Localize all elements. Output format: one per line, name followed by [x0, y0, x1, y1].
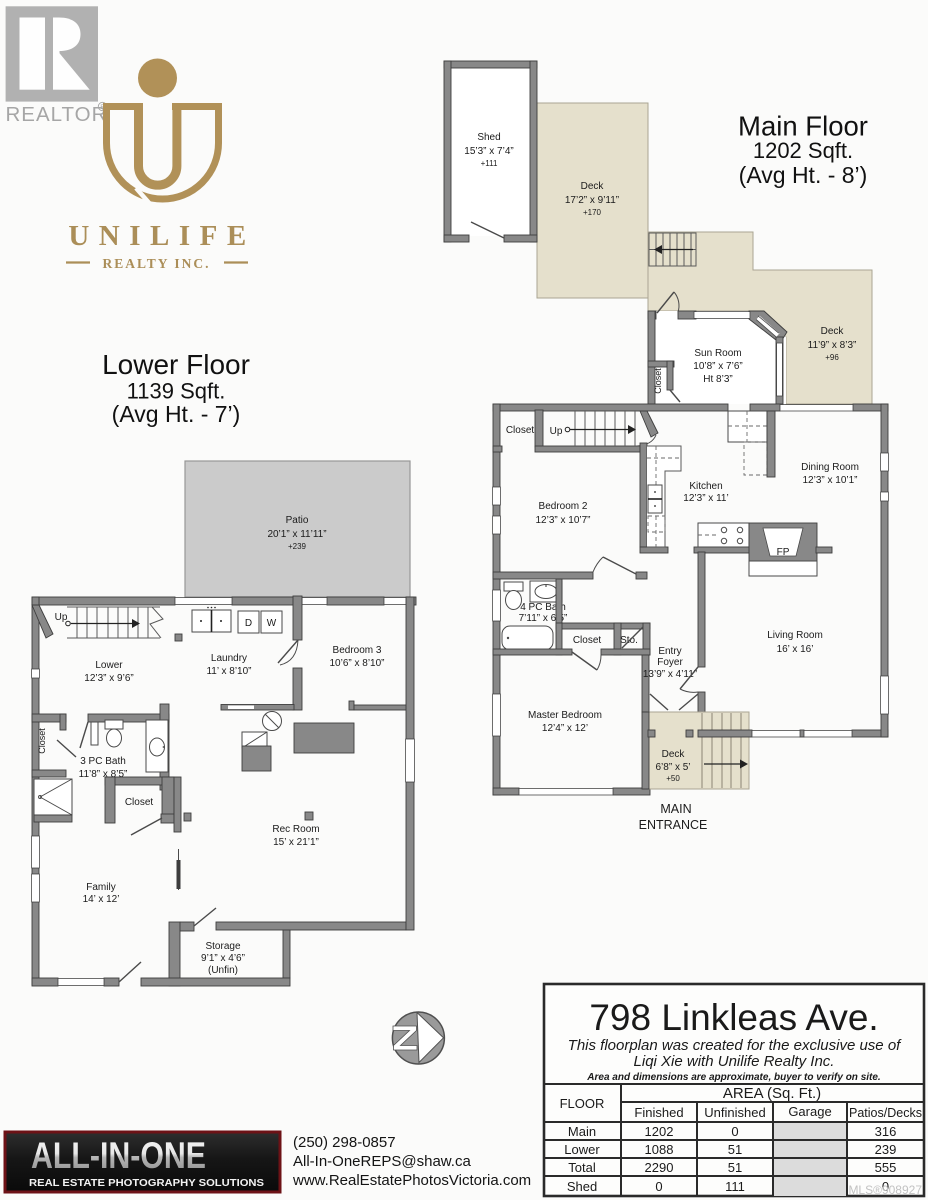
svg-text:12’4” x 12’: 12’4” x 12’ — [542, 723, 588, 734]
svg-text:0: 0 — [731, 1124, 738, 1139]
svg-text:MLS®908927: MLS®908927 — [848, 1183, 922, 1197]
svg-text:FLOOR: FLOOR — [560, 1096, 605, 1111]
svg-text:Patio: Patio — [286, 515, 309, 526]
svg-text:ALL-IN-ONE: ALL-IN-ONE — [31, 1135, 206, 1176]
svg-text:51: 51 — [728, 1142, 742, 1157]
svg-text:12’3” x 11’: 12’3” x 11’ — [683, 493, 728, 504]
svg-text:798 Linkleas Ave.: 798 Linkleas Ave. — [589, 997, 878, 1038]
svg-text:Up: Up — [550, 426, 563, 437]
svg-text:Storage: Storage — [205, 941, 240, 952]
svg-text:Unfinished: Unfinished — [704, 1105, 765, 1120]
svg-text:+96: +96 — [825, 353, 839, 362]
svg-text:Up: Up — [55, 612, 68, 623]
svg-text:ENTRANCE: ENTRANCE — [639, 818, 708, 832]
svg-text:Closet: Closet — [653, 368, 663, 394]
svg-text:Sun Room: Sun Room — [694, 348, 741, 359]
svg-text:All-In-OneREPS@shaw.ca: All-In-OneREPS@shaw.ca — [293, 1153, 471, 1170]
svg-text:10’8” x 7’6”: 10’8” x 7’6” — [693, 361, 742, 372]
svg-text:Patios/Decks: Patios/Decks — [849, 1106, 922, 1120]
svg-text:11’ x 8’10”: 11’ x 8’10” — [206, 666, 251, 677]
svg-text:51: 51 — [728, 1160, 742, 1175]
svg-text:+239: +239 — [288, 542, 307, 551]
svg-text:(Avg Ht. - 7’): (Avg Ht. - 7’) — [112, 401, 241, 427]
svg-text:Shed: Shed — [567, 1179, 597, 1194]
svg-text:Liqi Xie with Unilife Realty I: Liqi Xie with Unilife Realty Inc. — [634, 1053, 835, 1070]
svg-text:111: 111 — [725, 1179, 745, 1194]
svg-text:Bedroom 2: Bedroom 2 — [539, 501, 588, 512]
svg-text:2290: 2290 — [645, 1160, 674, 1175]
svg-text:Area and dimensions are approx: Area and dimensions are approximate, buy… — [586, 1072, 880, 1083]
svg-text:REAL ESTATE PHOTOGRAPHY SOLUTI: REAL ESTATE PHOTOGRAPHY SOLUTIONS — [29, 1178, 264, 1189]
svg-text:1202: 1202 — [645, 1124, 674, 1139]
svg-text:316: 316 — [875, 1124, 897, 1139]
svg-text:Laundry: Laundry — [211, 653, 247, 664]
svg-text:Finished: Finished — [634, 1105, 683, 1120]
svg-text:14’ x 12’: 14’ x 12’ — [83, 894, 120, 905]
svg-text:Ht 8’3”: Ht 8’3” — [703, 374, 732, 385]
svg-text:6’8” x 5’: 6’8” x 5’ — [655, 762, 690, 773]
svg-text:12’3” x 10’7”: 12’3” x 10’7” — [535, 515, 590, 526]
svg-text:(Unfin): (Unfin) — [208, 965, 238, 976]
svg-text:Closet: Closet — [125, 797, 154, 808]
svg-text:Dining Room: Dining Room — [801, 462, 859, 473]
svg-text:15’ x 21’1”: 15’ x 21’1” — [273, 837, 319, 848]
svg-text:REALTY INC.: REALTY INC. — [102, 256, 210, 271]
svg-text:Lower: Lower — [95, 660, 123, 671]
svg-text:(250) 298-0857: (250) 298-0857 — [293, 1134, 396, 1151]
svg-text:Main: Main — [568, 1124, 596, 1139]
svg-text:Total: Total — [568, 1160, 596, 1175]
svg-text:10’6” x 8’10”: 10’6” x 8’10” — [329, 658, 384, 669]
svg-text:12’3” x 10’1”: 12’3” x 10’1” — [802, 475, 857, 486]
svg-text:Foyer: Foyer — [657, 657, 683, 668]
svg-text:Rec Room: Rec Room — [272, 824, 319, 835]
svg-text:Family: Family — [86, 882, 115, 893]
svg-text:Lower Floor: Lower Floor — [102, 349, 250, 380]
svg-text:1202 Sqft.: 1202 Sqft. — [753, 138, 853, 163]
svg-text:15’3” x 7’4”: 15’3” x 7’4” — [464, 146, 513, 157]
svg-text:Shed: Shed — [477, 132, 500, 143]
svg-text:12’3” x 9’6”: 12’3” x 9’6” — [84, 673, 133, 684]
svg-text:AREA (Sq. Ft.): AREA (Sq. Ft.) — [723, 1085, 821, 1102]
svg-text:D: D — [245, 618, 252, 629]
svg-text:Closet: Closet — [506, 425, 535, 436]
svg-text:+111: +111 — [481, 159, 498, 168]
svg-text:Bedroom 3: Bedroom 3 — [333, 645, 382, 656]
svg-text:W: W — [267, 618, 277, 629]
svg-text:REALTOR: REALTOR — [6, 103, 108, 126]
svg-text:Living Room: Living Room — [767, 630, 823, 641]
svg-text:1139 Sqft.: 1139 Sqft. — [127, 379, 226, 404]
svg-text:(Avg Ht. - 8’): (Avg Ht. - 8’) — [739, 162, 868, 188]
svg-text:Deck: Deck — [581, 181, 605, 192]
svg-text:Closet: Closet — [573, 635, 602, 646]
svg-text:239: 239 — [875, 1142, 897, 1157]
svg-text:3 PC Bath: 3 PC Bath — [80, 756, 126, 767]
svg-text:Master Bedroom: Master Bedroom — [528, 710, 602, 721]
svg-text:Entry: Entry — [658, 646, 681, 657]
svg-text:www.RealEstatePhotosVictoria.c: www.RealEstatePhotosVictoria.com — [292, 1172, 531, 1189]
svg-text:0: 0 — [655, 1179, 662, 1194]
svg-text:+170: +170 — [583, 208, 602, 217]
svg-text:20’1” x 11’11”: 20’1” x 11’11” — [267, 529, 326, 540]
svg-text:1088: 1088 — [645, 1142, 674, 1157]
svg-text:17’2” x 9’11”: 17’2” x 9’11” — [565, 195, 619, 206]
svg-text:Deck: Deck — [821, 326, 845, 337]
svg-text:+50: +50 — [666, 774, 680, 783]
svg-text:Deck: Deck — [662, 749, 686, 760]
svg-text:Garage: Garage — [788, 1104, 831, 1119]
svg-text:11’9” x 8’3”: 11’9” x 8’3” — [808, 340, 857, 351]
svg-text:This floorplan was created for: This floorplan was created for the exclu… — [568, 1037, 902, 1054]
svg-text:FP: FP — [777, 547, 790, 558]
svg-text:9’1” x 4’6”: 9’1” x 4’6” — [201, 953, 245, 964]
svg-text:Closet: Closet — [37, 728, 47, 754]
svg-text:Main Floor: Main Floor — [738, 111, 868, 142]
svg-text:16’ x 16’: 16’ x 16’ — [777, 644, 814, 655]
svg-text:MAIN: MAIN — [660, 802, 691, 816]
svg-text:555: 555 — [875, 1160, 897, 1175]
svg-text:Kitchen: Kitchen — [689, 481, 722, 492]
svg-text:UNILIFE: UNILIFE — [68, 220, 255, 252]
svg-text:Lower: Lower — [564, 1142, 600, 1157]
